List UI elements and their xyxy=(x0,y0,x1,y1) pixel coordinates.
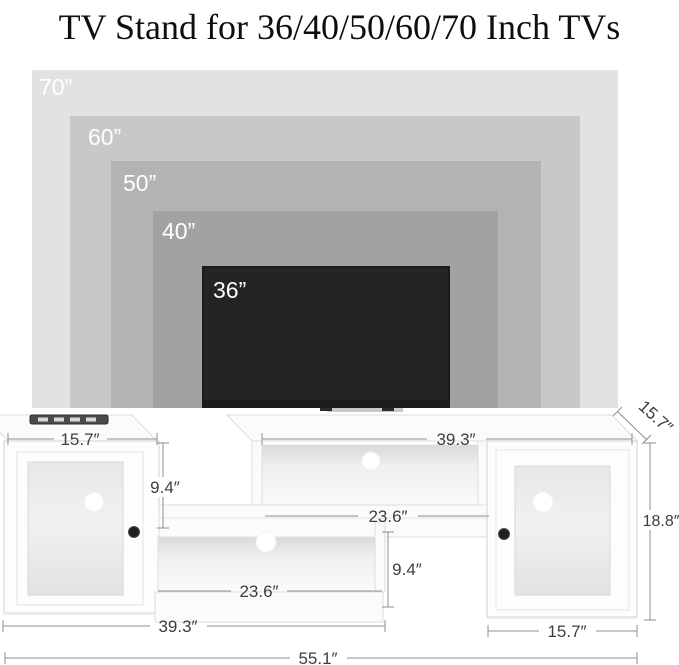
tv-size-40-label: 40” xyxy=(153,211,498,245)
svg-text:18.8″: 18.8″ xyxy=(643,513,679,530)
lower-cable-hole xyxy=(256,532,276,552)
tv-stand-diagram: 15.7″ 39.3″ 15.7″ 18.8″ 9.4 xyxy=(0,395,679,665)
upper-bridge-right-wall xyxy=(478,441,487,505)
right-door-knob xyxy=(499,529,510,540)
power-outlet-strip xyxy=(30,415,108,424)
tv-size-50-label: 50” xyxy=(111,161,541,197)
svg-text:55.1″: 55.1″ xyxy=(298,649,337,665)
right-cable-hole xyxy=(533,492,553,512)
svg-text:15.7″: 15.7″ xyxy=(547,622,586,641)
dim-lower-opening-height: 9.4″ xyxy=(382,532,426,607)
tv-screen-36-rect: 36” xyxy=(202,266,450,408)
svg-text:23.6″: 23.6″ xyxy=(368,507,407,526)
svg-text:15.7″: 15.7″ xyxy=(60,430,99,449)
tv-size-36-label: 36” xyxy=(202,266,450,304)
right-cabinet xyxy=(487,441,637,619)
page-title: TV Stand for 36/40/50/60/70 Inch TVs xyxy=(0,6,679,48)
svg-text:39.3″: 39.3″ xyxy=(158,617,197,636)
left-door-glass xyxy=(28,462,123,595)
svg-text:15.7″: 15.7″ xyxy=(635,397,677,437)
svg-text:9.4″: 9.4″ xyxy=(150,478,180,497)
right-door-glass xyxy=(515,466,610,595)
lower-bridge-shelf xyxy=(155,522,385,622)
dim-cabinet-height: 18.8″ xyxy=(642,443,679,620)
tv-size-70-label: 70” xyxy=(32,70,618,101)
right-cabinet-shadow xyxy=(487,617,637,619)
svg-text:39.3″: 39.3″ xyxy=(436,430,475,449)
tv-size-60-label: 60” xyxy=(70,116,580,151)
product-image: TV Stand for 36/40/50/60/70 Inch TVs 70”… xyxy=(0,0,679,665)
dim-total-width: 55.1″ xyxy=(5,649,637,665)
upper-cable-hole xyxy=(362,452,380,470)
upper-bridge-left-wall xyxy=(252,441,262,505)
dim-right-cabinet-bottom-width: 15.7″ xyxy=(488,622,637,641)
svg-text:23.6″: 23.6″ xyxy=(239,582,278,601)
upper-bridge-top xyxy=(227,415,637,441)
left-cable-hole xyxy=(85,493,104,512)
upper-bridge-bottom-board xyxy=(159,505,487,537)
left-cabinet-shadow xyxy=(4,613,159,615)
svg-text:9.4″: 9.4″ xyxy=(392,560,422,579)
left-door-knob xyxy=(129,527,140,538)
